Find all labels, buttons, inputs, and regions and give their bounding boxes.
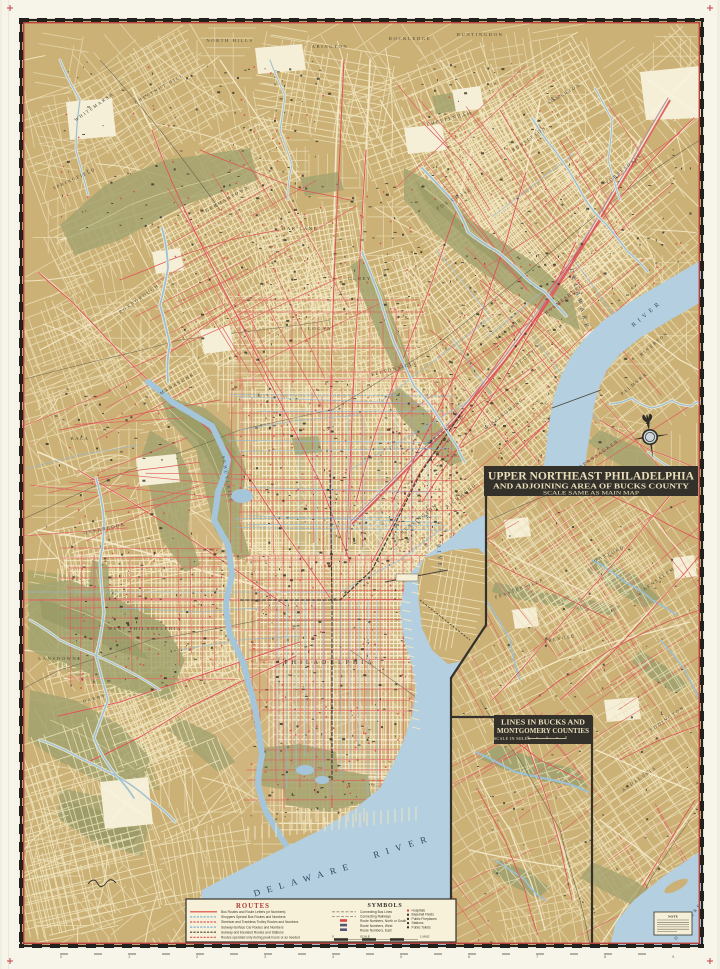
svg-text:Route Numbers, East: Route Numbers, East — [360, 928, 392, 932]
svg-text:Route Numbers, West: Route Numbers, West — [360, 924, 392, 928]
svg-text:Bus Routes and Route Letters (: Bus Routes and Route Letters (or Numbers… — [221, 910, 286, 914]
svg-text:Subway-Surface Car Routes and: Subway-Surface Car Routes and Numbers — [221, 925, 284, 929]
svg-text:ROUTES: ROUTES — [236, 903, 270, 910]
svg-text:ABINGTON: ABINGTON — [312, 44, 349, 49]
svg-text:BALA: BALA — [71, 436, 90, 441]
svg-text:Subway and Elevated Routes and: Subway and Elevated Routes and Stations — [221, 930, 284, 934]
svg-text:1 MILE: 1 MILE — [420, 935, 430, 939]
svg-text:Streetcar and Trackless Trolle: Streetcar and Trackless Trolley Routes a… — [221, 920, 299, 924]
svg-text:Connecting Railways: Connecting Railways — [360, 915, 391, 919]
svg-text:ROCKLEDGE: ROCKLEDGE — [389, 36, 431, 41]
svg-text:LANSDOWNE: LANSDOWNE — [38, 656, 82, 661]
svg-text:HUNTINGDON: HUNTINGDON — [457, 32, 504, 37]
svg-text:SCALE: SCALE — [360, 935, 370, 939]
svg-text:SCALE SAME AS MAIN MAP: SCALE SAME AS MAIN MAP — [543, 492, 639, 497]
svg-text:MONTGOMERY COUNTIES: MONTGOMERY COUNTIES — [497, 727, 589, 735]
svg-text:NORTH HILLS: NORTH HILLS — [206, 38, 253, 43]
svg-text:SYMBOLS: SYMBOLS — [368, 903, 403, 909]
svg-text:OAK LANE: OAK LANE — [282, 226, 318, 231]
svg-text:Shoppers Special Bus Routes an: Shoppers Special Bus Routes and Numbers — [221, 915, 286, 919]
svg-text:LINES IN BUCKS AND: LINES IN BUCKS AND — [501, 719, 585, 727]
svg-text:Route Numbers, North or South: Route Numbers, North or South — [360, 919, 407, 923]
svg-text:WEST PHILADELPHIA: WEST PHILADELPHIA — [108, 626, 182, 631]
svg-text:LOGAN: LOGAN — [308, 326, 332, 331]
svg-text:NOTE: NOTE — [668, 915, 679, 919]
svg-text:SCALE IN MILES: SCALE IN MILES — [494, 736, 531, 741]
svg-text:AND ADJOINING AREA OF BUCKS CO: AND ADJOINING AREA OF BUCKS COUNTY — [493, 482, 689, 491]
svg-text:Connecting Bus Lines: Connecting Bus Lines — [360, 910, 392, 914]
svg-text:Public Toilets: Public Toilets — [412, 925, 432, 929]
svg-text:OLNEY: OLNEY — [348, 276, 372, 281]
svg-text:Routes operated only during pe: Routes operated only during peak hours o… — [221, 936, 300, 940]
svg-text:PHILADELPHIA: PHILADELPHIA — [284, 660, 375, 666]
